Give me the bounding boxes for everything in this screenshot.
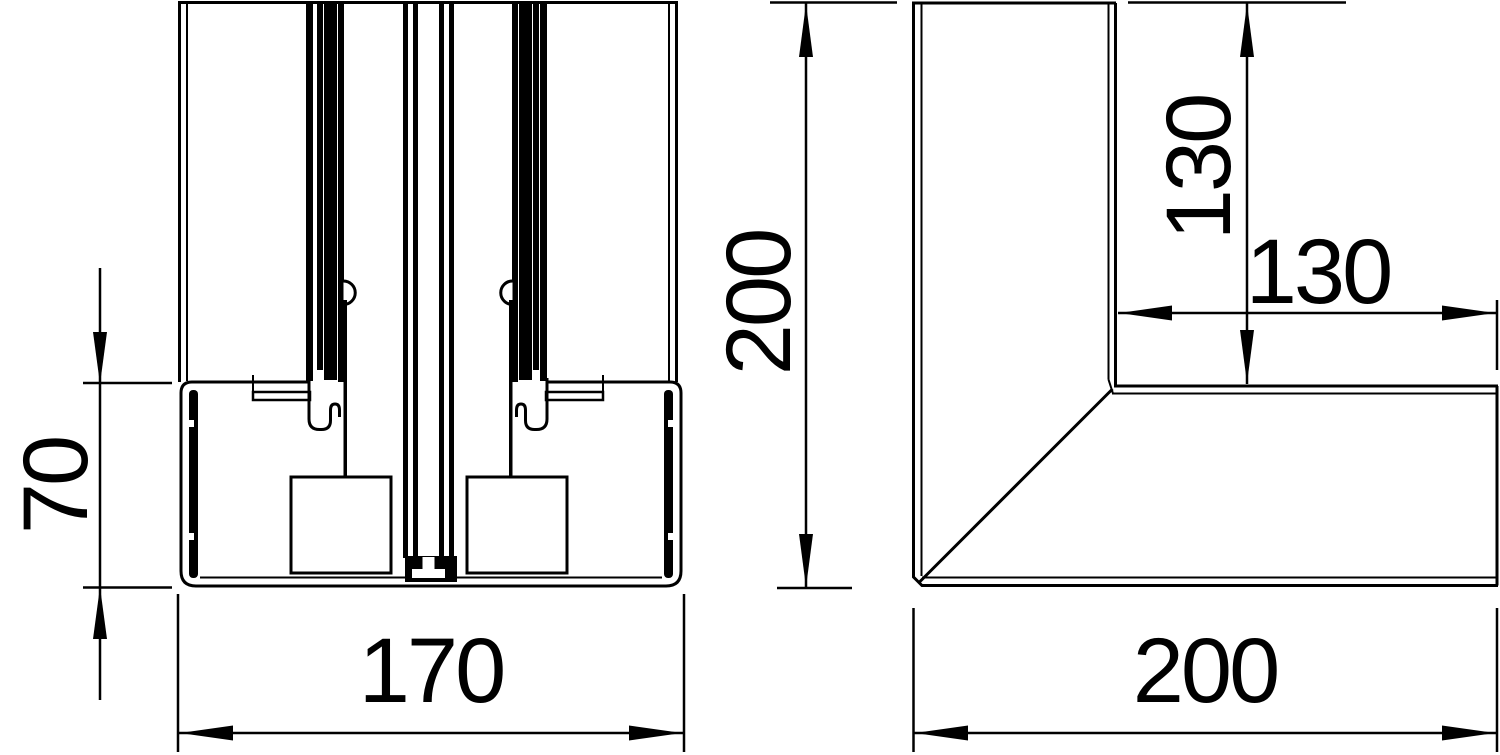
right-seal-strip	[664, 390, 673, 578]
left-cluster-line-4	[338, 2, 344, 382]
left-cluster-line-2	[317, 2, 323, 370]
right-cluster-line-3	[519, 2, 532, 380]
left-seal-notch-top	[189, 420, 194, 427]
arrow-left-icon	[180, 726, 233, 741]
dimension-200-bottom: 200	[914, 608, 1498, 752]
left-rod	[344, 300, 348, 478]
right-seal-notch-bottom	[668, 533, 673, 540]
dim-130h-label: 130	[1246, 221, 1391, 323]
dim-200b-label: 200	[1133, 620, 1278, 722]
dim-170-label: 170	[359, 620, 504, 722]
arrow-up-icon	[93, 587, 107, 639]
center-line-4	[449, 2, 454, 558]
left-ledge	[253, 392, 310, 400]
arrow-right-icon	[629, 726, 682, 741]
dimension-130-vertical: 130	[1128, 3, 1346, 385]
right-hook	[517, 378, 548, 430]
right-box	[467, 477, 567, 573]
arrow-down-icon	[1240, 330, 1254, 383]
center-foot-slot-bar	[412, 569, 445, 578]
arrow-down-icon	[93, 332, 107, 384]
right-seal-notch-top	[668, 420, 673, 427]
center-line-2	[413, 2, 418, 558]
right-cluster-line-1	[540, 2, 547, 381]
dimension-170: 170	[178, 594, 684, 752]
dimension-70: 70	[5, 268, 172, 700]
left-cluster-line-1	[306, 2, 313, 381]
arrow-left-icon	[1119, 306, 1172, 321]
dimension-200-vertical: 200	[708, 3, 897, 589]
mitre-diagonal-line	[919, 389, 1113, 583]
left-hook	[309, 378, 340, 430]
right-cluster-line-2	[533, 2, 539, 370]
arrow-left-icon	[915, 726, 968, 741]
dim-130v-label: 130	[1148, 96, 1250, 241]
arrow-right-icon	[1442, 726, 1495, 741]
right-rod	[509, 300, 513, 478]
left-cluster-line-3	[324, 2, 337, 380]
left-box	[291, 477, 391, 573]
left-seal-notch-bottom	[189, 533, 194, 540]
drawing-svg: 70 170	[0, 0, 1500, 755]
corner-plan-view: 200 130 130 200	[708, 3, 1498, 753]
right-cluster-line-4	[512, 2, 518, 382]
dim-200v-label: 200	[708, 231, 810, 376]
cross-section-view: 70 170	[5, 2, 684, 752]
dim-70-label: 70	[5, 438, 107, 534]
left-seal-strip	[189, 390, 198, 578]
center-foot-slot-stem	[423, 557, 435, 570]
arrow-up-icon	[799, 4, 813, 57]
right-ledge	[546, 392, 603, 400]
technical-drawing-canvas: 70 170	[0, 0, 1500, 755]
center-line-1	[403, 2, 408, 558]
arrow-up-icon	[1240, 4, 1254, 57]
center-line-3	[439, 2, 444, 558]
channel-outline	[181, 382, 681, 586]
corner-outer-outline	[914, 3, 1499, 586]
dimension-130-horizontal: 130	[1118, 221, 1497, 370]
arrow-down-icon	[799, 534, 813, 587]
arrow-right-icon	[1442, 306, 1495, 321]
